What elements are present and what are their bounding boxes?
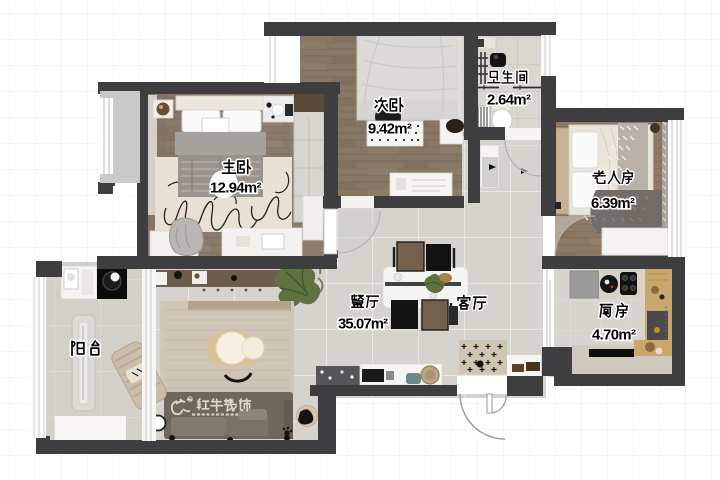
svg-text:2.64m²: 2.64m²	[487, 93, 531, 109]
svg-text:6.39m²: 6.39m²	[591, 196, 635, 212]
svg-text:4.70m²: 4.70m²	[592, 328, 636, 344]
svg-text:35.07m²: 35.07m²	[338, 317, 388, 333]
svg-text:9.42m²: 9.42m²	[368, 122, 412, 138]
svg-text:12.94m²: 12.94m²	[210, 181, 262, 197]
